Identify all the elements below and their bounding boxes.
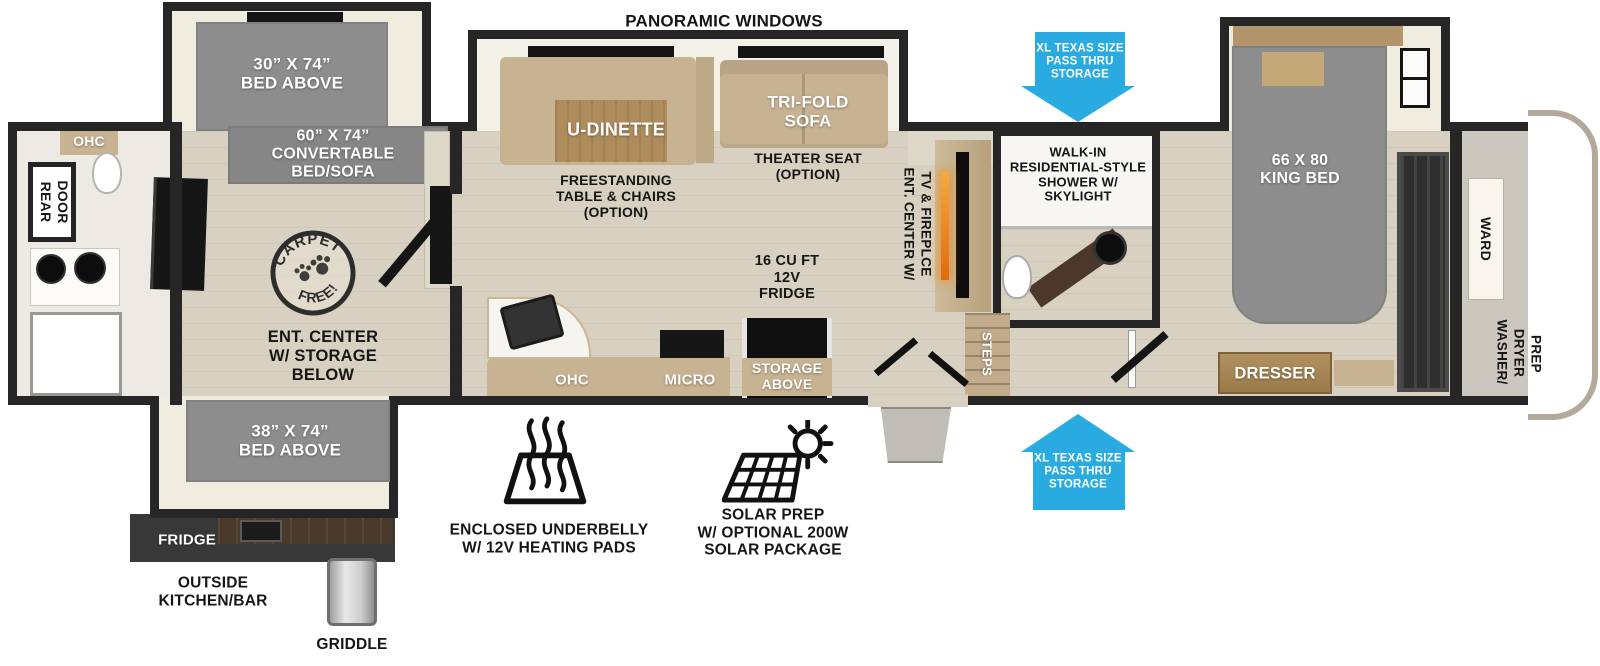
bunk-tv-2 bbox=[430, 186, 452, 284]
pass-thru-arrow-bottom-point bbox=[1021, 414, 1135, 452]
ent-center-tv-label-1: ENT. CENTER W/ bbox=[902, 168, 917, 281]
living-tv bbox=[956, 152, 969, 298]
front-cap bbox=[1528, 110, 1598, 420]
bath-toilet bbox=[1002, 255, 1032, 299]
outside-kitchen-label: OUTSIDE KITCHEN/BAR bbox=[159, 574, 268, 609]
u-dinette-label: U-DINETTE bbox=[567, 120, 665, 141]
freestanding-label: FREESTANDING TABLE & CHAIRS (OPTION) bbox=[556, 173, 676, 221]
rear-door-label-1: REAR bbox=[38, 182, 54, 223]
washer-dryer-prep-label-1: WASHER/ bbox=[1495, 319, 1510, 384]
pass-thru-arrow-top-point bbox=[1021, 86, 1135, 122]
wall-bunk-living-upper bbox=[450, 122, 462, 194]
pass-thru-label-top: XL TEXAS SIZE PASS THRU STORAGE bbox=[1036, 42, 1123, 81]
slatted-wardrobe bbox=[1397, 152, 1449, 392]
griddle-label: GRIDDLE bbox=[316, 636, 387, 654]
heating-pads-icon bbox=[497, 415, 593, 511]
ward-label: WARD bbox=[1478, 217, 1494, 261]
bed-above-top-label: 30” X 74” BED ABOVE bbox=[241, 55, 343, 94]
tri-fold-sofa-label: TRI-FOLD SOFA bbox=[768, 93, 849, 132]
panoramic-windows-label: PANORAMIC WINDOWS bbox=[625, 11, 823, 30]
bedroom-window-right bbox=[1400, 48, 1430, 108]
bed-pillow bbox=[1262, 52, 1324, 86]
rear-toilet bbox=[92, 152, 122, 194]
cooktop bbox=[660, 330, 724, 358]
wall-bedroom-front bbox=[1450, 122, 1462, 405]
fridge-12v-label: 16 CU FT 12V FRIDGE bbox=[755, 253, 819, 303]
entry-opening bbox=[868, 394, 968, 407]
fireplace-icon bbox=[941, 172, 949, 280]
washer-dryer-prep-label-3: PREP bbox=[1529, 335, 1544, 373]
dinette-divider bbox=[696, 57, 714, 163]
outside-kitchen-appliance bbox=[240, 520, 282, 542]
entry-steps-outside bbox=[872, 407, 960, 463]
ent-center-tv-label-2: TV & FIREPLCE bbox=[919, 171, 934, 276]
solar-prep-icon bbox=[722, 420, 834, 508]
theater-seat-label: THEATER SEAT (OPTION) bbox=[754, 151, 862, 183]
outside-fridge-label: FRIDGE bbox=[158, 531, 216, 548]
ent-center-storage-label: ENT. CENTER W/ STORAGE BELOW bbox=[268, 328, 378, 384]
convertible-label: 60” X 74” CONVERTABLE BED/SOFA bbox=[272, 128, 395, 183]
bath-sink bbox=[1093, 231, 1127, 265]
steps-label: STEPS bbox=[980, 332, 995, 376]
storage-above-label: STORAGE ABOVE bbox=[752, 361, 822, 393]
pass-thru-label-bottom: XL TEXAS SIZE PASS THRU STORAGE bbox=[1034, 452, 1121, 491]
rear-ohc-label: OHC bbox=[73, 134, 105, 150]
king-bed-label: 66 X 80 KING BED bbox=[1260, 152, 1340, 188]
griddle bbox=[327, 558, 377, 626]
rear-shower bbox=[30, 312, 122, 396]
bedside-cabinet bbox=[1334, 360, 1394, 386]
headboard-shelf bbox=[1233, 26, 1403, 46]
solar-label: SOLAR PREP W/ OPTIONAL 200W SOLAR PACKAG… bbox=[697, 507, 848, 560]
walk-in-shower-label: WALK-IN RESIDENTIAL-STYLE SHOWER W/ SKYL… bbox=[1010, 145, 1146, 204]
living-window-right bbox=[738, 46, 884, 58]
wall-bunk-living-lower bbox=[450, 286, 462, 405]
dresser-label: DRESSER bbox=[1234, 365, 1315, 384]
rear-door-label-2: DOOR bbox=[55, 180, 71, 223]
underbelly-label: ENCLOSED UNDERBELLY W/ 12V HEATING PADS bbox=[450, 521, 649, 556]
wall-bath-bunk bbox=[170, 122, 182, 405]
micro-label: MICRO bbox=[665, 371, 716, 388]
kitchen-ohc-label: OHC bbox=[555, 371, 589, 388]
rv-floorplan: PANORAMIC WINDOWS CARPET FREE! bbox=[0, 0, 1600, 666]
rear-sink-2 bbox=[74, 252, 106, 284]
washer-dryer-prep-label-2: DRYER bbox=[1512, 329, 1527, 377]
rear-sink-1 bbox=[36, 254, 66, 284]
bed-above-bottom-label: 38” X 74” BED ABOVE bbox=[239, 422, 341, 461]
